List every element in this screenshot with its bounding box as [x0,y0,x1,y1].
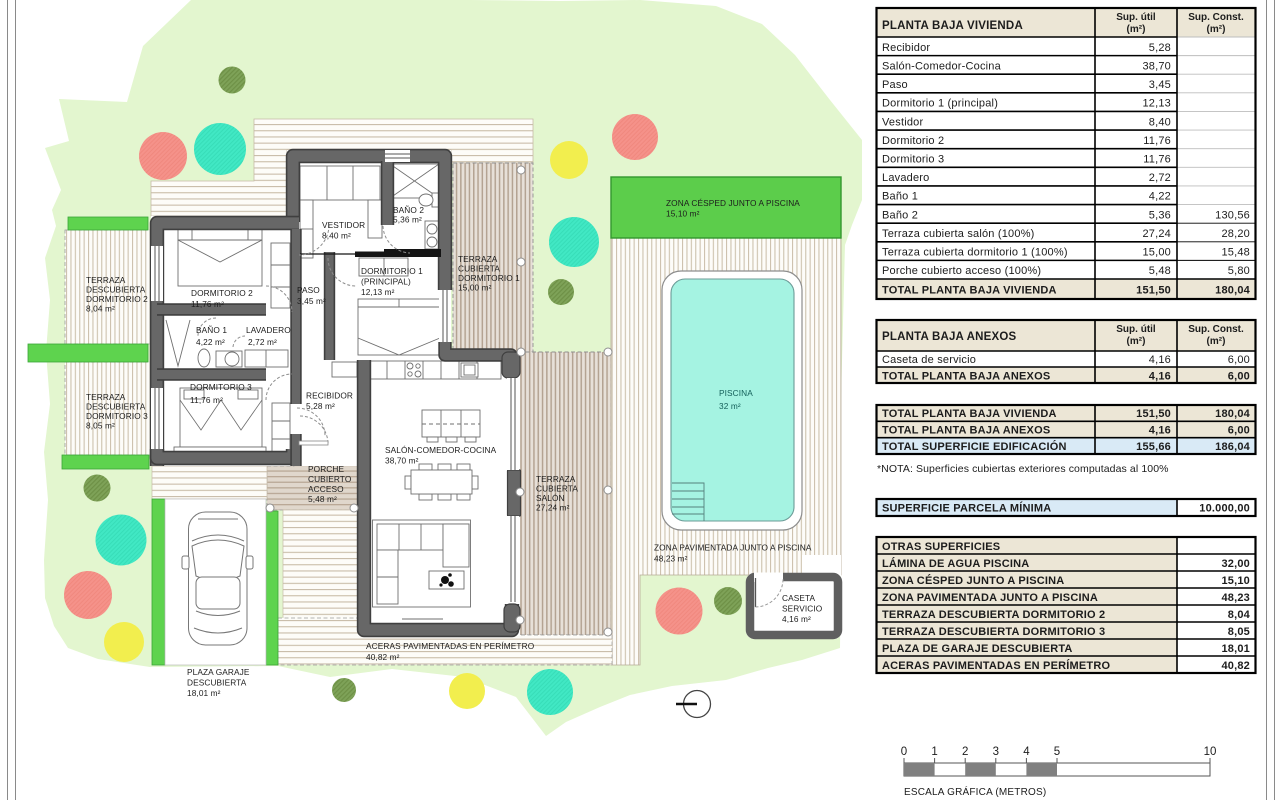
svg-text:130,56: 130,56 [1215,209,1250,221]
svg-text:6,00: 6,00 [1228,424,1250,436]
svg-text:1: 1 [931,746,937,758]
svg-text:PASO: PASO [297,285,320,295]
svg-text:Dormitorio 2: Dormitorio 2 [882,135,944,147]
svg-text:TOTAL PLANTA BAJA VIVIENDA: TOTAL PLANTA BAJA VIVIENDA [882,408,1057,420]
svg-text:3,45: 3,45 [1149,79,1171,91]
svg-text:CUBIERTO: CUBIERTO [308,474,352,484]
svg-text:4,16: 4,16 [1149,371,1171,383]
svg-text:0: 0 [901,746,907,758]
svg-text:4,22 m²: 4,22 m² [196,337,225,347]
svg-text:2,72: 2,72 [1149,172,1171,184]
svg-text:38,70: 38,70 [1142,60,1171,72]
svg-text:CASETA: CASETA [782,593,816,603]
svg-text:SUPERFICIE PARCELA MÍNIMA: SUPERFICIE PARCELA MÍNIMA [882,502,1051,515]
svg-text:12,13 m²: 12,13 m² [361,287,395,297]
svg-text:186,04: 186,04 [1215,441,1251,453]
svg-text:Terraza cubierta salón (100%): Terraza cubierta salón (100%) [882,228,1035,240]
svg-text:6,00: 6,00 [1228,354,1250,366]
svg-text:15,00: 15,00 [1142,247,1171,259]
svg-text:8,04: 8,04 [1228,609,1251,621]
svg-text:TOTAL PLANTA BAJA ANEXOS: TOTAL PLANTA BAJA ANEXOS [882,371,1050,383]
svg-text:4: 4 [1023,746,1030,758]
svg-text:DORMITORIO 1: DORMITORIO 1 [361,266,423,276]
svg-text:32,00: 32,00 [1221,558,1250,570]
svg-text:27,24 m²: 27,24 m² [536,503,570,513]
svg-text:5,48: 5,48 [1149,265,1171,277]
svg-text:TOTAL PLANTA BAJA ANEXOS: TOTAL PLANTA BAJA ANEXOS [882,424,1050,436]
svg-text:11,76: 11,76 [1143,153,1171,165]
svg-text:8,04 m²: 8,04 m² [86,304,115,314]
svg-text:PORCHE: PORCHE [308,464,344,474]
svg-text:5,80: 5,80 [1228,265,1250,277]
svg-text:PLANTA BAJA ANEXOS: PLANTA BAJA ANEXOS [882,331,1016,343]
svg-text:38,70 m²: 38,70 m² [385,456,419,466]
svg-text:Lavadero: Lavadero [882,172,929,184]
svg-text:ESCALA GRÁFICA (METROS): ESCALA GRÁFICA (METROS) [904,785,1046,798]
svg-text:3,45 m²: 3,45 m² [297,296,326,306]
svg-text:4,16: 4,16 [1149,354,1171,366]
svg-text:8,40: 8,40 [1149,116,1171,128]
svg-text:DORMITORIO 3: DORMITORIO 3 [190,382,252,392]
svg-text:LAVADERO: LAVADERO [246,325,291,335]
svg-text:PISCINA: PISCINA [719,388,753,398]
svg-text:Baño 2: Baño 2 [882,209,918,221]
svg-text:18,01: 18,01 [1221,643,1250,655]
svg-text:DESCUBIERTA: DESCUBIERTA [86,285,146,295]
svg-text:155,66: 155,66 [1136,441,1171,453]
svg-text:VESTIDOR: VESTIDOR [322,220,365,230]
svg-text:11,76 m²: 11,76 m² [191,299,224,309]
svg-text:3: 3 [993,746,999,758]
svg-text:Terraza cubierta dormitorio 1: Terraza cubierta dormitorio 1 (100%) [882,247,1068,259]
svg-text:(m²): (m²) [1207,24,1226,35]
svg-text:PLANTA BAJA VIVIENDA: PLANTA BAJA VIVIENDA [882,20,1023,32]
svg-text:6,00: 6,00 [1228,371,1250,383]
svg-text:Salón-Comedor-Cocina: Salón-Comedor-Cocina [882,60,1002,72]
svg-text:BAÑO 1: BAÑO 1 [196,325,227,335]
svg-text:BAÑO 2: BAÑO 2 [393,205,424,215]
svg-text:*NOTA: Superficies cubiertas e: *NOTA: Superficies cubiertas exteriores … [877,463,1169,475]
svg-text:15,10 m²: 15,10 m² [666,209,700,219]
svg-text:ZONA CÉSPED JUNTO A PISCINA: ZONA CÉSPED JUNTO A PISCINA [666,198,800,208]
svg-text:15,10: 15,10 [1221,575,1250,587]
svg-text:TERRAZA: TERRAZA [86,275,126,285]
svg-text:Paso: Paso [882,79,908,91]
svg-text:Recibidor: Recibidor [882,42,930,54]
svg-text:12,13: 12,13 [1142,98,1171,110]
svg-text:151,50: 151,50 [1136,285,1171,297]
svg-text:18,01 m²: 18,01 m² [187,688,221,698]
svg-text:Porche cubierto acceso (100%): Porche cubierto acceso (100%) [882,265,1041,277]
svg-text:Sup. útil: Sup. útil [1116,12,1156,23]
svg-text:4,16: 4,16 [1149,424,1171,436]
svg-text:ACERAS PAVIMENTADAS EN PERÍMET: ACERAS PAVIMENTADAS EN PERÍMETRO [882,659,1110,672]
svg-text:48,23 m²: 48,23 m² [654,554,688,564]
svg-text:40,82 m²: 40,82 m² [366,652,400,662]
svg-text:CUBIERTA: CUBIERTA [458,264,500,274]
svg-text:Dormitorio 3: Dormitorio 3 [882,153,944,165]
svg-text:28,20: 28,20 [1221,228,1250,240]
svg-text:180,04: 180,04 [1215,285,1251,297]
svg-text:2: 2 [962,746,968,758]
svg-text:SALÓN-COMEDOR-COCINA: SALÓN-COMEDOR-COCINA [385,445,497,455]
svg-text:LÁMINA DE AGUA PISCINA: LÁMINA DE AGUA PISCINA [882,557,1029,570]
svg-text:Dormitorio 1 (principal): Dormitorio 1 (principal) [882,98,998,110]
svg-text:TERRAZA DESCUBIERTA DORMITORIO: TERRAZA DESCUBIERTA DORMITORIO 2 [882,609,1105,621]
svg-text:5,36 m²: 5,36 m² [393,215,422,225]
svg-text:8,40 m²: 8,40 m² [322,231,351,241]
svg-text:RECIBIDOR: RECIBIDOR [306,391,353,401]
svg-text:11,76: 11,76 [1143,135,1171,147]
svg-text:(m²): (m²) [1127,336,1146,347]
svg-text:DORMITORIO 3: DORMITORIO 3 [86,411,148,421]
svg-text:15,48: 15,48 [1221,247,1250,259]
svg-text:15,00 m²: 15,00 m² [458,283,492,293]
svg-text:DORMITORIO 1: DORMITORIO 1 [458,273,520,283]
svg-text:OTRAS SUPERFICIES: OTRAS SUPERFICIES [882,541,1000,553]
svg-text:10.000,00: 10.000,00 [1199,503,1250,515]
svg-text:TERRAZA: TERRAZA [86,392,126,402]
svg-text:151,50: 151,50 [1136,408,1171,420]
svg-text:4,16 m²: 4,16 m² [782,614,811,624]
svg-text:10: 10 [1204,746,1217,758]
svg-text:CUBIERTA: CUBIERTA [536,484,578,494]
svg-text:5,36: 5,36 [1149,209,1171,221]
svg-text:5,28 m²: 5,28 m² [306,401,335,411]
svg-text:32 m²: 32 m² [719,401,741,411]
svg-text:11,76 m²: 11,76 m² [190,395,223,405]
svg-text:2,72 m²: 2,72 m² [248,337,277,347]
svg-text:PLAZA GARAJE: PLAZA GARAJE [187,667,250,677]
svg-text:5,48 m²: 5,48 m² [308,494,337,504]
svg-text:SALÓN: SALÓN [536,493,565,503]
svg-text:Baño 1: Baño 1 [882,191,918,203]
svg-text:Sup. Const.: Sup. Const. [1188,12,1244,23]
svg-text:SERVICIO: SERVICIO [782,604,823,614]
svg-text:(m²): (m²) [1127,24,1146,35]
svg-text:TOTAL PLANTA BAJA VIVIENDA: TOTAL PLANTA BAJA VIVIENDA [882,285,1057,297]
svg-text:DESCUBIERTA: DESCUBIERTA [86,402,146,412]
svg-text:TERRAZA: TERRAZA [458,254,498,264]
svg-text:180,04: 180,04 [1215,408,1251,420]
svg-text:Sup. útil: Sup. útil [1116,324,1156,335]
svg-text:TOTAL SUPERFICIE EDIFICACIÓN: TOTAL SUPERFICIE EDIFICACIÓN [882,440,1067,453]
svg-text:5: 5 [1054,746,1060,758]
svg-text:DORMITORIO 2: DORMITORIO 2 [191,288,253,298]
svg-text:TERRAZA DESCUBIERTA DORMITORIO: TERRAZA DESCUBIERTA DORMITORIO 3 [882,626,1105,638]
svg-text:DESCUBIERTA: DESCUBIERTA [187,678,247,688]
svg-text:TERRAZA: TERRAZA [536,474,576,484]
svg-text:5,28: 5,28 [1149,42,1171,54]
svg-text:Vestidor: Vestidor [882,116,923,128]
svg-text:40,82: 40,82 [1221,660,1250,672]
svg-text:48,23: 48,23 [1221,592,1250,604]
svg-text:Sup. Const.: Sup. Const. [1188,324,1244,335]
svg-text:ZONA PAVIMENTADA JUNTO A PISCI: ZONA PAVIMENTADA JUNTO A PISCINA [654,543,812,553]
svg-text:PLAZA DE GARAJE DESCUBIERTA: PLAZA DE GARAJE DESCUBIERTA [882,643,1073,655]
svg-text:4,22: 4,22 [1149,191,1171,203]
svg-text:DORMITORIO 2: DORMITORIO 2 [86,294,148,304]
svg-text:8,05: 8,05 [1228,626,1250,638]
svg-text:(PRINCIPAL): (PRINCIPAL) [361,277,411,287]
svg-text:Caseta de servicio: Caseta de servicio [882,354,976,366]
svg-text:27,24: 27,24 [1142,228,1171,240]
svg-text:ACERAS PAVIMENTADAS EN PERÍMET: ACERAS PAVIMENTADAS EN PERÍMETRO [366,641,535,651]
svg-text:ZONA PAVIMENTADA JUNTO A PISCI: ZONA PAVIMENTADA JUNTO A PISCINA [882,592,1098,604]
svg-text:8,05 m²: 8,05 m² [86,421,115,431]
svg-text:ACCESO: ACCESO [308,484,344,494]
svg-text:ZONA CÉSPED JUNTO A PISCINA: ZONA CÉSPED JUNTO A PISCINA [882,574,1064,587]
svg-text:(m²): (m²) [1207,336,1226,347]
